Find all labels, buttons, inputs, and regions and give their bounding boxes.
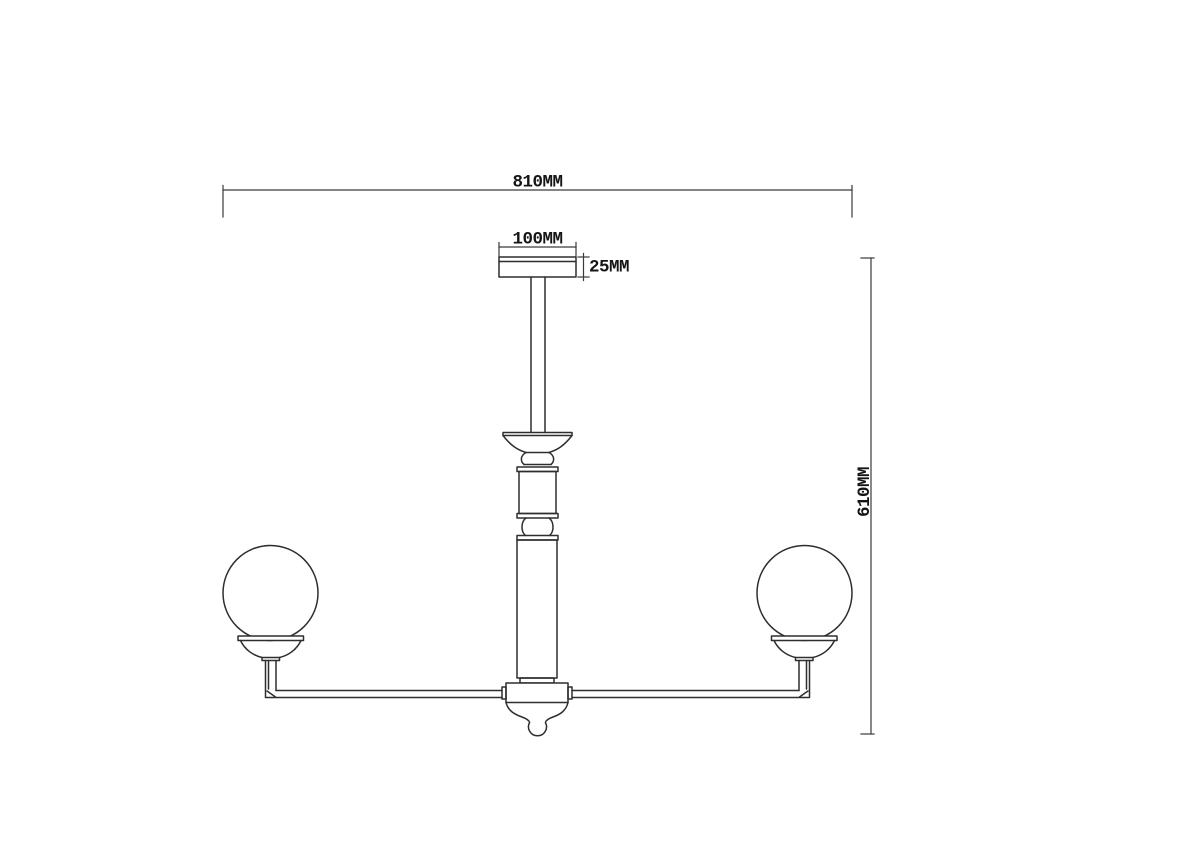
left-holder-right-curve	[280, 641, 302, 658]
downrod-stem	[531, 277, 545, 433]
hub-body	[506, 683, 568, 703]
hub-right-cap	[568, 687, 572, 699]
dim-label-canopy-height: 25MM	[589, 258, 629, 278]
right-globe-holder-lip	[772, 636, 838, 641]
right-holder-left-curve	[774, 641, 796, 658]
bell-rim	[503, 433, 572, 436]
left-arm-assembly	[238, 636, 502, 698]
left-globe	[223, 546, 318, 641]
dim-canopy-width: 100MM	[499, 230, 576, 257]
ceiling-canopy	[499, 257, 576, 277]
dim-overall-height: 610MM	[855, 258, 875, 734]
dim-canopy-height: 25MM	[578, 254, 629, 281]
left-globe-holder-lip	[238, 636, 304, 641]
right-holder-right-curve	[813, 641, 835, 658]
right-glass-globe	[757, 546, 852, 641]
right-holder-collar	[796, 658, 814, 661]
left-corner-mitre	[267, 691, 276, 697]
spool-left	[522, 518, 526, 536]
lower-column	[517, 540, 557, 678]
finial-skirt-and-ball	[506, 703, 568, 736]
flange-middle	[517, 514, 558, 519]
knob-left	[521, 453, 526, 465]
right-corner-mitre	[800, 691, 809, 697]
canopy-body	[499, 257, 576, 277]
bell-left-curve	[503, 436, 526, 453]
dim-label-canopy-width: 100MM	[512, 230, 562, 250]
spool-right	[549, 518, 553, 536]
center-hub	[502, 683, 572, 703]
dim-label-overall-width: 810MM	[512, 173, 562, 193]
technical-drawing-page: 810MM 100MM 25MM 610MM	[0, 0, 1200, 848]
dim-label-overall-height: 610MM	[855, 467, 875, 517]
left-holder-collar	[262, 658, 280, 661]
right-arm-assembly	[572, 636, 837, 698]
dim-overall-width: 810MM	[223, 173, 852, 218]
knob-right	[549, 453, 554, 465]
center-column	[503, 433, 572, 684]
left-holder-left-curve	[241, 641, 263, 658]
bell-right-curve	[549, 436, 572, 453]
upper-cylinder	[519, 472, 556, 514]
chandelier-dimension-drawing: 810MM 100MM 25MM 610MM	[0, 0, 1200, 848]
bottom-finial	[506, 703, 568, 736]
left-glass-globe	[223, 546, 318, 641]
hub-left-cap	[502, 687, 506, 699]
right-globe	[757, 546, 852, 641]
